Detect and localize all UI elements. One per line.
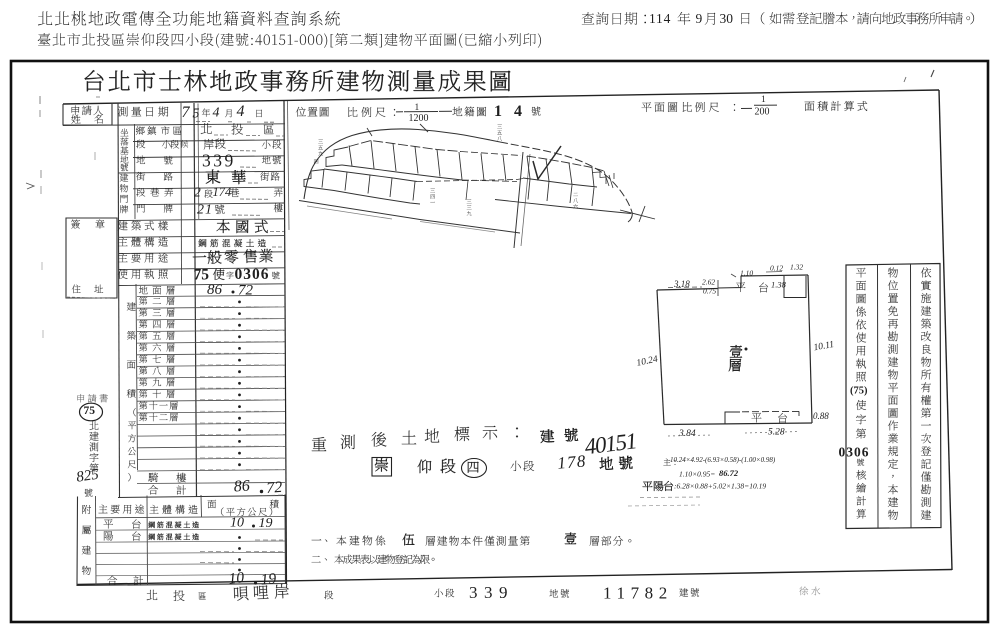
svg-text:7: 7 (182, 104, 191, 121)
svg-text:0.12: 0.12 (770, 263, 783, 272)
svg-text:0.88: 0.88 (813, 411, 829, 421)
svg-text::6.28×0.88+5.02×1.38=10.19: :6.28×0.88+5.02×1.38=10.19 (674, 481, 766, 490)
svg-text:75: 75 (84, 405, 96, 417)
svg-text:19: 19 (260, 570, 277, 588)
svg-text:19: 19 (259, 516, 273, 531)
svg-text:(75): (75) (850, 386, 868, 397)
svg-text:825: 825 (75, 467, 100, 486)
svg-text:339: 339 (202, 151, 236, 171)
svg-text:72: 72 (266, 479, 283, 497)
svg-text:30: 30 (720, 11, 734, 26)
svg-text:1: 1 (415, 103, 420, 113)
svg-text:178: 178 (557, 451, 588, 472)
svg-text:10: 10 (228, 569, 245, 587)
svg-text:2: 2 (194, 185, 201, 200)
svg-text:11782: 11782 (603, 583, 673, 602)
svg-text:86: 86 (233, 477, 250, 495)
svg-text:1 4: 1 4 (494, 103, 526, 120)
svg-text:72: 72 (238, 283, 254, 299)
svg-text:0306: 0306 (839, 445, 870, 460)
svg-text:5: 5 (193, 106, 200, 121)
svg-text:21: 21 (197, 202, 213, 217)
svg-text:1.10: 1.10 (740, 268, 753, 277)
svg-text:2.62: 2.62 (702, 277, 715, 286)
svg-text:10: 10 (230, 515, 244, 530)
svg-text:174: 174 (213, 185, 232, 199)
svg-text:86.72: 86.72 (719, 468, 739, 478)
svg-text:86: 86 (207, 282, 223, 298)
svg-text:1.32: 1.32 (790, 262, 803, 271)
svg-text:0.75: 0.75 (703, 286, 716, 295)
svg-text:1.10×0.95=: 1.10×0.95= (679, 469, 715, 478)
svg-text:4: 4 (237, 103, 245, 120)
svg-text:0306: 0306 (235, 266, 270, 283)
svg-text:75: 75 (194, 267, 210, 284)
svg-text:9: 9 (696, 11, 703, 26)
svg-text:114: 114 (649, 11, 671, 26)
svg-text:1200: 1200 (409, 113, 429, 124)
svg-text:339: 339 (469, 583, 514, 602)
svg-text:200: 200 (755, 106, 770, 117)
svg-text:1: 1 (761, 95, 766, 105)
svg-text:10.24×4.92-(6.93×0.58)-(1.00×0: 10.24×4.92-(6.93×0.58)-(1.00×0.98) (670, 456, 776, 464)
svg-text:4: 4 (213, 105, 220, 120)
svg-text:3.84: 3.84 (678, 429, 696, 439)
svg-text:1.38: 1.38 (771, 280, 787, 290)
